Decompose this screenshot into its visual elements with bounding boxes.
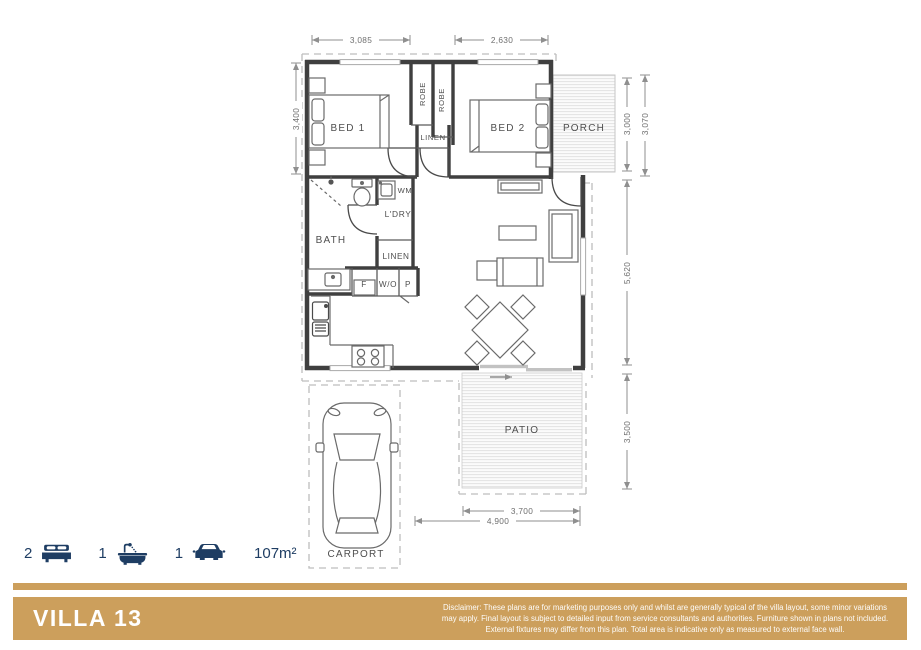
- wall-oven-label: W/O: [379, 280, 397, 289]
- dim-patio-depth: 3,500: [621, 374, 633, 489]
- shower-icon: [311, 177, 341, 207]
- linen2-label: LINEN: [382, 252, 409, 261]
- pantry-door-mark: [400, 296, 409, 303]
- bedside-table: [536, 153, 551, 167]
- pillow: [536, 127, 548, 148]
- living-window: [581, 238, 586, 295]
- patio-label: PATIO: [505, 425, 540, 436]
- bath-icon: [116, 542, 149, 565]
- wm-label: WM: [398, 186, 413, 195]
- dining-set: [465, 295, 535, 365]
- tv-unit: [498, 180, 542, 193]
- svg-text:3,070: 3,070: [640, 113, 650, 135]
- bath-label: BATH: [316, 235, 347, 246]
- cooktop-icon: [352, 346, 384, 367]
- dim-porch-depth: 3,000: [621, 78, 633, 171]
- fridge-label: F: [361, 280, 367, 289]
- pillow: [312, 123, 324, 145]
- dining-chair: [465, 295, 489, 319]
- entry-door: [552, 177, 581, 206]
- dim-bed2-width: 2,630: [455, 34, 548, 46]
- living-furniture: [465, 180, 578, 365]
- svg-text:5,620: 5,620: [622, 262, 632, 284]
- vanity-icon: [308, 269, 350, 290]
- dim-bed1-width: 3,085: [312, 34, 410, 46]
- svg-text:4,900: 4,900: [487, 516, 509, 526]
- svg-text:2,630: 2,630: [491, 35, 513, 45]
- bed2-label: BED 2: [491, 123, 526, 134]
- svg-text:3,085: 3,085: [350, 35, 372, 45]
- carport-label: CARPORT: [327, 549, 384, 560]
- dim-living-depth: 5,620: [621, 180, 633, 365]
- total-area: 107m²: [254, 545, 297, 562]
- villa-title: VILLA 13: [33, 605, 143, 632]
- porch-label: PORCH: [563, 123, 605, 134]
- bedroom-count: 2: [24, 545, 32, 562]
- svg-text:3,500: 3,500: [622, 421, 632, 443]
- toilet-icon: [352, 179, 372, 206]
- dining-chair: [511, 341, 535, 365]
- bath-door: [348, 205, 377, 234]
- coffee-table: [499, 226, 536, 240]
- car-icon: [192, 543, 226, 564]
- bed-icon: [41, 543, 72, 564]
- bed1-door: [388, 148, 417, 177]
- dining-chair: [465, 341, 489, 365]
- bed2-door: [420, 148, 449, 177]
- ldry-label: L'DRY: [385, 209, 412, 219]
- bed2-window: [478, 60, 538, 65]
- svg-text:3,000: 3,000: [622, 113, 632, 135]
- bedside-table: [309, 150, 325, 165]
- pillow: [312, 99, 324, 121]
- dim-bed1-depth: 3,400: [290, 63, 302, 174]
- footer-bar: VILLA 13 Disclaimer: These plans are for…: [13, 597, 907, 640]
- svg-text:3,700: 3,700: [511, 506, 533, 516]
- svg-text:3,400: 3,400: [291, 108, 301, 130]
- dim-porch-depth-overall: 3,070: [639, 75, 651, 176]
- washing-machine-icon: [378, 181, 395, 199]
- car-topview-icon: [316, 403, 398, 548]
- floorplan-page: 3,085 2,630 3,400 3,000 3,070: [0, 0, 921, 650]
- linen1-label: LINEN: [420, 133, 445, 142]
- summary-row: 2 1 1 107m²: [24, 536, 297, 570]
- pantry-label: P: [405, 280, 411, 289]
- bed1-label: BED 1: [331, 123, 366, 134]
- robe1-label: ROBE: [418, 82, 427, 106]
- bedside-table: [536, 84, 551, 98]
- car-count: 1: [175, 545, 183, 562]
- robe2-label: ROBE: [437, 88, 446, 112]
- dining-chair: [511, 295, 535, 319]
- bedside-table: [309, 78, 325, 93]
- kitchen: [311, 296, 393, 368]
- ottoman: [477, 261, 497, 280]
- bed1-window: [340, 60, 400, 65]
- bed1-furniture: [309, 78, 389, 165]
- armchair: [497, 258, 543, 286]
- footer-accent-strip: [13, 583, 907, 590]
- sofa: [549, 210, 578, 262]
- pillow: [536, 104, 548, 125]
- dim-patio-width-overall: 4,900: [415, 515, 580, 527]
- disclaimer-text: Disclaimer: These plans are for marketin…: [439, 602, 891, 635]
- bathroom-count: 1: [98, 545, 106, 562]
- kitchen-sink-icon: [313, 302, 329, 336]
